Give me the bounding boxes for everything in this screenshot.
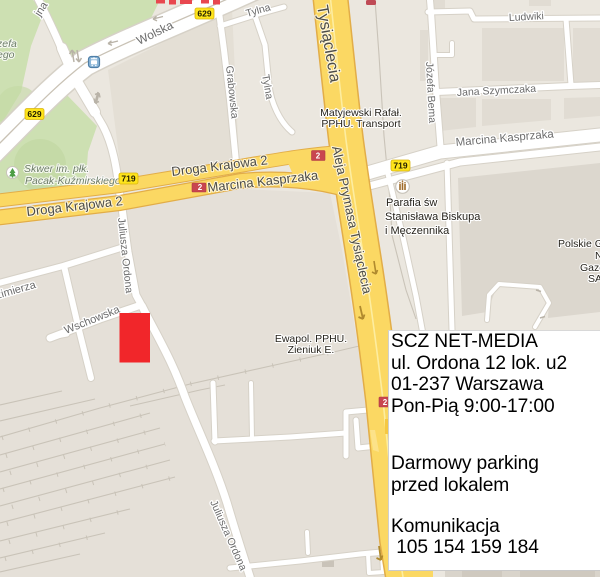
svg-text:2: 2 [198, 183, 203, 192]
svg-text:Zieniuk E.: Zieniuk E. [288, 344, 335, 356]
svg-text:Polskie G: Polskie G [558, 238, 600, 250]
svg-text:629: 629 [27, 109, 41, 119]
svg-text:Na: Na [595, 250, 600, 262]
svg-text:719: 719 [121, 174, 135, 184]
svg-text:SA: SA [588, 273, 600, 285]
svg-text:719: 719 [393, 161, 407, 171]
svg-text:ego: ego [0, 49, 15, 61]
svg-text:Skwer im. płk.: Skwer im. płk. [24, 163, 89, 175]
svg-text:2: 2 [316, 152, 321, 161]
svg-text:Stanisława Biskupa: Stanisława Biskupa [385, 211, 481, 223]
svg-text:PPHU. Transport: PPHU. Transport [321, 118, 400, 130]
svg-text:629: 629 [197, 9, 211, 19]
svg-text:Parafia św: Parafia św [386, 197, 437, 209]
svg-text:Ludwiki: Ludwiki [509, 10, 545, 24]
svg-text:i Męczennika: i Męczennika [385, 225, 450, 237]
svg-text:Pacak-Kuźmirskiego: Pacak-Kuźmirskiego [25, 175, 121, 187]
